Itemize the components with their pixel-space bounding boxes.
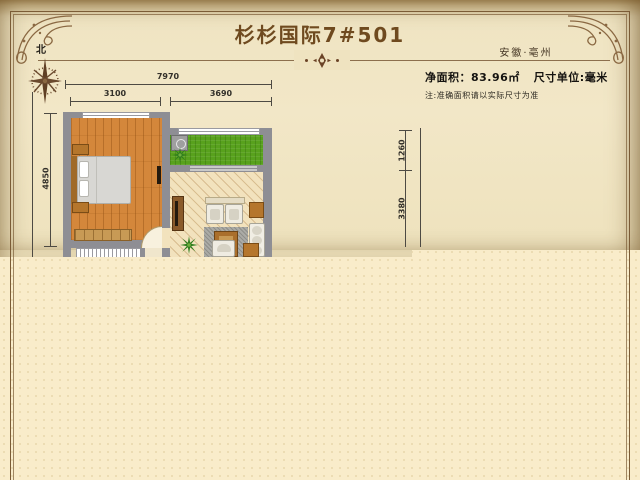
side-table (243, 243, 259, 257)
armchair (206, 204, 224, 224)
tv-cabinet (172, 196, 184, 231)
area-note: 注:准确面积请以实际尺寸为准 (425, 90, 539, 101)
living-tv (175, 201, 178, 226)
dining-chair (212, 240, 235, 257)
pillow (79, 180, 89, 197)
location-text: 安徽·亳州 (466, 44, 586, 59)
balcony-sliding-door (190, 166, 257, 171)
bedroom-window (82, 112, 150, 118)
plant-icon (180, 236, 198, 254)
nightstand (72, 144, 89, 155)
bay-window (76, 248, 140, 257)
balcony-window (178, 128, 260, 135)
bedroom-right-wall-stub (162, 248, 170, 257)
bedroom-left-wall (63, 112, 71, 257)
bedroom-tv (157, 166, 161, 184)
area-info-line: 净面积：83.96㎡尺寸单位:毫米 (425, 69, 608, 85)
side-table (249, 202, 264, 218)
net-area-value: 83.96㎡ (471, 71, 520, 84)
nightstand (72, 202, 89, 213)
pillow (79, 161, 89, 178)
armchair (225, 204, 243, 224)
plant-icon (172, 147, 188, 163)
unit-text: 尺寸单位:毫米 (534, 71, 608, 84)
bedroom-right-wall (162, 112, 170, 228)
floorplan-poster: 杉杉国际7#501 安徽·亳州 净面积：83.96㎡尺寸单位:毫米 注:准确面积… (0, 0, 640, 480)
doorway-floor (162, 228, 170, 248)
bedroom-bottom-wall (63, 240, 145, 248)
dim-line-right-outer (420, 128, 421, 247)
sofa-back-table (205, 197, 245, 204)
bed-blanket-edge (96, 157, 97, 203)
net-area-label: 净面积： (425, 71, 471, 84)
floorplan (0, 0, 412, 257)
dresser (74, 229, 132, 241)
